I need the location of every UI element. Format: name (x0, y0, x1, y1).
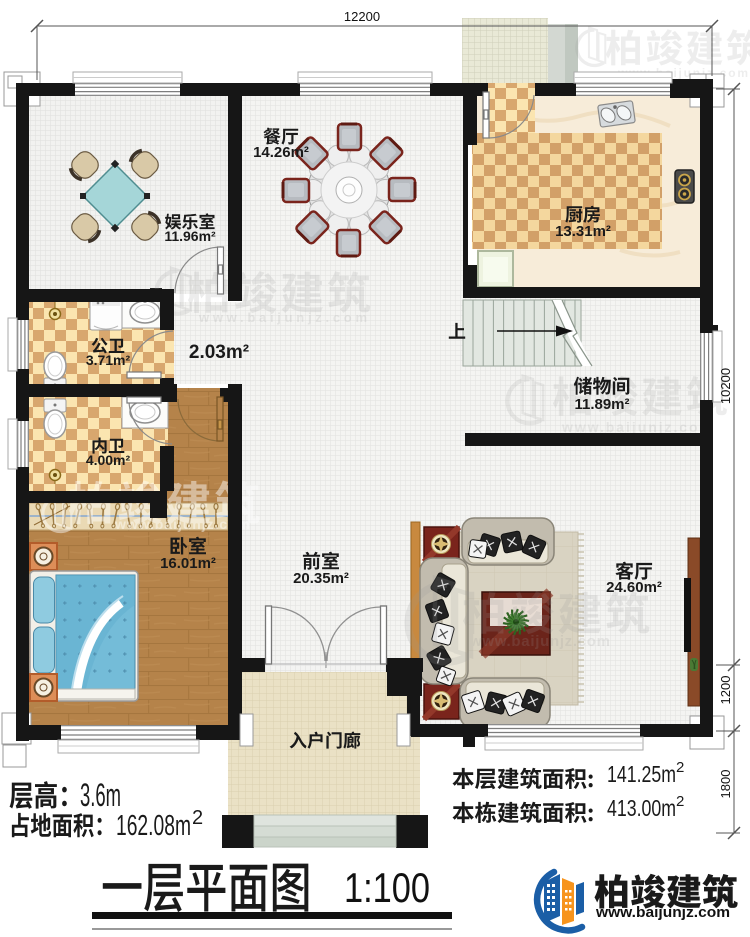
svg-text:162.08m: 162.08m (116, 810, 191, 842)
svg-text:11.96m²: 11.96m² (164, 228, 216, 244)
svg-text:2: 2 (676, 759, 684, 776)
svg-text:www.baijunjz.com: www.baijunjz.com (595, 905, 730, 921)
svg-text:3.71m²: 3.71m² (86, 352, 131, 368)
svg-text:141.25m: 141.25m (607, 761, 676, 787)
svg-text:413.00m: 413.00m (607, 795, 676, 821)
svg-text:1200: 1200 (718, 676, 733, 705)
svg-text:www.baijunjz.com: www.baijunjz.com (469, 633, 610, 650)
svg-text:1800: 1800 (718, 770, 733, 799)
svg-text:20.35m²: 20.35m² (293, 570, 349, 587)
svg-text:13.31m²: 13.31m² (555, 223, 611, 240)
svg-text:1:100: 1:100 (344, 864, 430, 911)
svg-text:24.60m²: 24.60m² (606, 579, 662, 596)
svg-text:10200: 10200 (718, 368, 733, 404)
svg-text:3.6m: 3.6m (80, 777, 121, 813)
svg-text:16.01m²: 16.01m² (160, 555, 216, 572)
svg-text:2: 2 (192, 807, 203, 829)
svg-text:14.26m²: 14.26m² (253, 144, 309, 161)
svg-text:11.89m²: 11.89m² (574, 396, 629, 413)
svg-text:4.00m²: 4.00m² (86, 452, 131, 468)
svg-text:2: 2 (676, 793, 684, 810)
svg-text:2.03m²: 2.03m² (189, 342, 249, 363)
svg-text:12200: 12200 (344, 9, 380, 24)
